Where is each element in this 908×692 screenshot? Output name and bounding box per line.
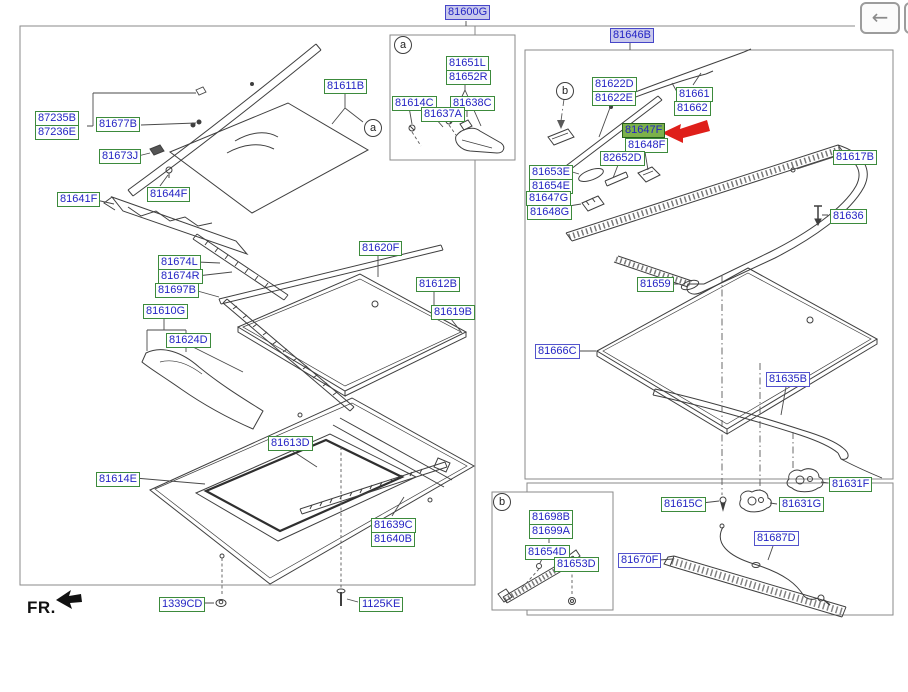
part-label-81619B[interactable]: 81619B	[431, 305, 475, 320]
part-label-81674L[interactable]: 81674L	[158, 255, 201, 270]
part-label-81651L[interactable]: 81651L	[446, 56, 489, 71]
part-label-81644F[interactable]: 81644F	[147, 187, 190, 202]
part-label-81612B[interactable]: 81612B	[416, 277, 460, 292]
part-label-81640B[interactable]: 81640B	[371, 532, 415, 547]
part-label-81687D[interactable]: 81687D	[754, 531, 799, 546]
part-label-1339CD[interactable]: 1339CD	[159, 597, 205, 612]
parts-diagram-page: 81600G 87235B 87236E 81677B 81673J 81644…	[0, 0, 908, 692]
part-label-87236E[interactable]: 87236E	[35, 125, 79, 140]
part-label-81677B[interactable]: 81677B	[96, 117, 140, 132]
section-marker-b-ref: b	[556, 82, 574, 100]
part-label-81624D[interactable]: 81624D	[166, 333, 211, 348]
part-label-81648G[interactable]: 81648G	[527, 205, 572, 220]
part-label-81620F[interactable]: 81620F	[359, 241, 402, 256]
part-label-81610G[interactable]: 81610G	[143, 304, 188, 319]
part-label-81697B[interactable]: 81697B	[155, 283, 199, 298]
part-label-81647G[interactable]: 81647G	[526, 191, 571, 206]
part-label-81659[interactable]: 81659	[637, 277, 674, 292]
part-label-1125KE[interactable]: 1125KE	[359, 597, 403, 612]
part-label-81653E[interactable]: 81653E	[529, 165, 573, 180]
part-label-81617B[interactable]: 81617B	[833, 150, 877, 165]
part-label-81673J[interactable]: 81673J	[99, 149, 141, 164]
part-label-81611B[interactable]: 81611B	[324, 79, 367, 94]
part-label-81662[interactable]: 81662	[674, 101, 711, 116]
part-label-82652D[interactable]: 82652D	[600, 151, 645, 166]
part-label-81698B[interactable]: 81698B	[529, 510, 573, 525]
next-button-partial	[904, 2, 908, 34]
part-label-81699A[interactable]: 81699A	[529, 524, 573, 539]
part-label-81635B[interactable]: 81635B	[766, 372, 810, 387]
part-label-81653D[interactable]: 81653D	[554, 557, 599, 572]
part-label-81614E[interactable]: 81614E	[96, 472, 140, 487]
part-label-81622E[interactable]: 81622E	[592, 91, 636, 106]
part-label-81661[interactable]: 81661	[676, 87, 713, 102]
back-arrow-icon: ←	[872, 5, 889, 29]
section-marker-a-ref: a	[364, 119, 382, 137]
part-label-81600G[interactable]: 81600G	[445, 5, 490, 20]
selected-part-arrow-icon	[662, 120, 710, 143]
part-label-81615C[interactable]: 81615C	[661, 497, 706, 512]
part-label-81641F[interactable]: 81641F	[57, 192, 100, 207]
part-label-81637A[interactable]: 81637A	[421, 107, 465, 122]
section-marker-b: b	[493, 493, 511, 511]
fr-direction-label: FR.	[27, 598, 56, 618]
part-label-81647F-selected[interactable]: 81647F	[622, 123, 665, 138]
section-marker-a: a	[394, 36, 412, 54]
part-label-81639C[interactable]: 81639C	[371, 518, 416, 533]
back-button[interactable]: ←	[860, 2, 900, 34]
part-label-81631G[interactable]: 81631G	[779, 497, 824, 512]
part-label-81613D[interactable]: 81613D	[268, 436, 313, 451]
part-label-81631F[interactable]: 81631F	[829, 477, 872, 492]
part-label-81666C[interactable]: 81666C	[535, 344, 580, 359]
part-label-81622D[interactable]: 81622D	[592, 77, 637, 92]
part-label-81636[interactable]: 81636	[830, 209, 867, 224]
part-label-81652R[interactable]: 81652R	[446, 70, 491, 85]
fr-direction-arrow-icon	[56, 590, 82, 609]
part-label-87235B[interactable]: 87235B	[35, 111, 79, 126]
part-label-81646B[interactable]: 81646B	[610, 28, 654, 43]
part-label-81674R[interactable]: 81674R	[158, 269, 203, 284]
part-label-81670F[interactable]: 81670F	[618, 553, 661, 568]
